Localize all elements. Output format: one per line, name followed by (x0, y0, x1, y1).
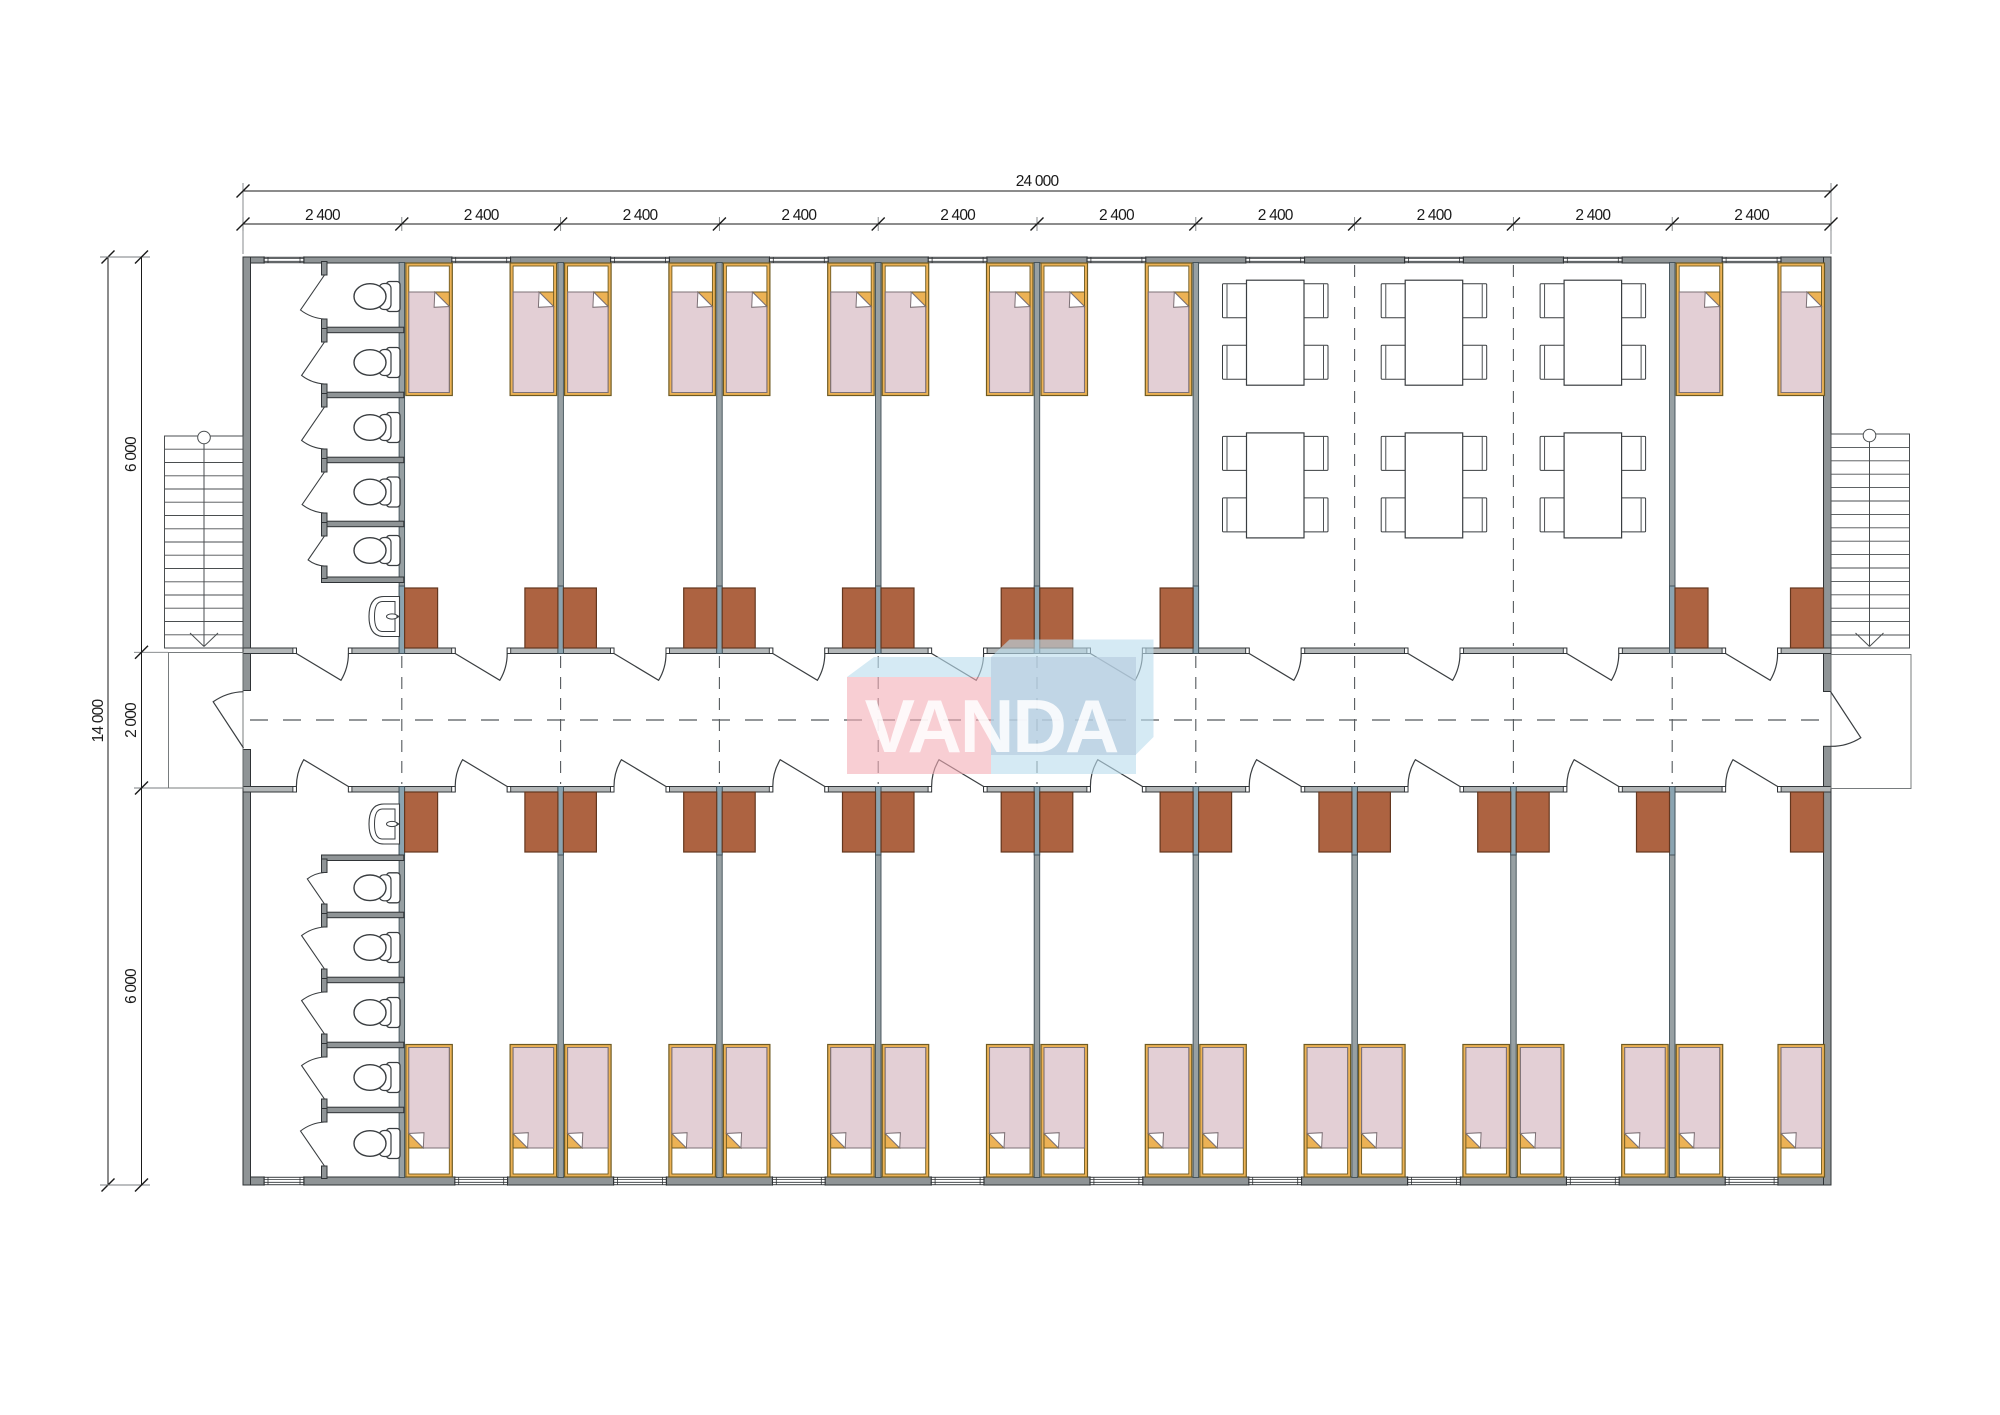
svg-text:24 000: 24 000 (1016, 173, 1060, 190)
svg-text:6 000: 6 000 (123, 968, 140, 1004)
svg-text:2 400: 2 400 (781, 207, 817, 224)
svg-text:14 000: 14 000 (90, 699, 107, 743)
svg-text:2 400: 2 400 (1258, 207, 1294, 224)
svg-text:6 000: 6 000 (123, 436, 140, 472)
svg-text:2 400: 2 400 (1417, 207, 1453, 224)
svg-text:2 400: 2 400 (940, 207, 976, 224)
svg-text:2 400: 2 400 (623, 207, 659, 224)
svg-text:2 400: 2 400 (1575, 207, 1611, 224)
svg-text:2 400: 2 400 (1734, 207, 1770, 224)
svg-text:2 400: 2 400 (305, 207, 341, 224)
svg-text:2 000: 2 000 (123, 702, 140, 738)
svg-text:2 400: 2 400 (464, 207, 500, 224)
svg-text:2 400: 2 400 (1099, 207, 1135, 224)
svg-text:VANDA: VANDA (865, 684, 1118, 768)
